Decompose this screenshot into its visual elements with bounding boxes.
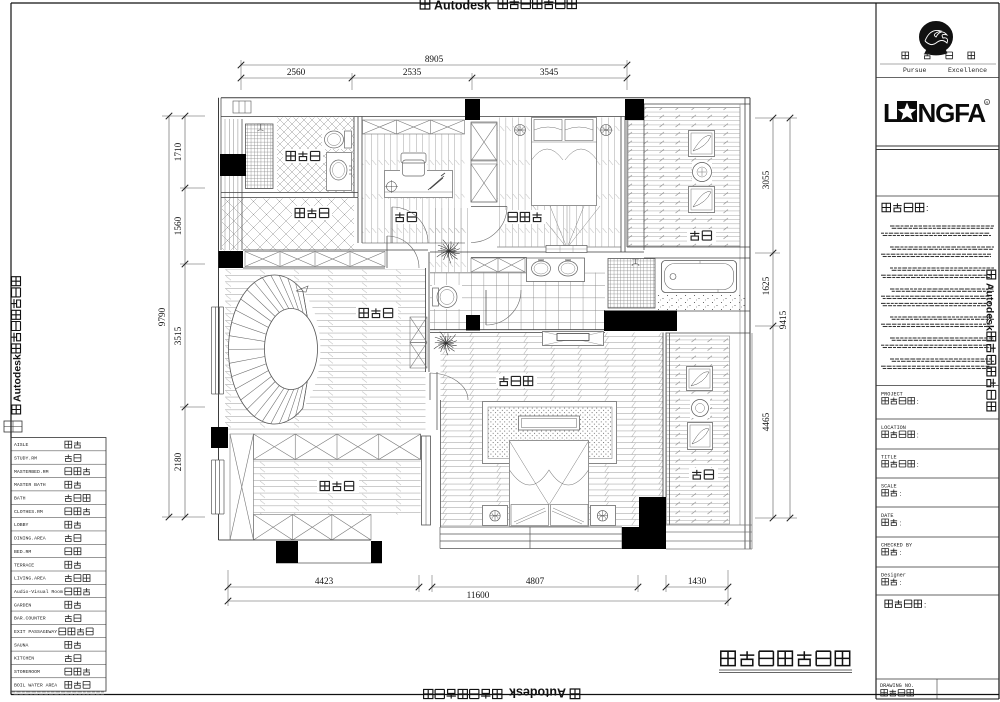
- svg-text:1625: 1625: [761, 276, 771, 295]
- svg-text::: :: [917, 462, 919, 469]
- svg-text:DRAWING NO.: DRAWING NO.: [880, 683, 914, 689]
- svg-text:2180: 2180: [173, 452, 183, 471]
- svg-text:STOREROOM: STOREROOM: [14, 669, 40, 675]
- svg-text:BED.RM: BED.RM: [14, 549, 31, 555]
- svg-text:SAUNA: SAUNA: [14, 642, 29, 648]
- svg-text:Autodesk: Autodesk: [509, 686, 566, 700]
- svg-text::: :: [926, 203, 929, 213]
- svg-text:2535: 2535: [403, 67, 422, 77]
- svg-text:MASTER BATH: MASTER BATH: [14, 482, 46, 488]
- svg-text:L: L: [883, 98, 899, 128]
- svg-text:LOBBY: LOBBY: [14, 522, 29, 528]
- svg-text:LOCATION: LOCATION: [881, 425, 906, 431]
- svg-text:PROJECT: PROJECT: [881, 392, 903, 398]
- svg-text:SCALE: SCALE: [881, 484, 897, 490]
- svg-text:KITCHEN: KITCHEN: [14, 656, 34, 662]
- svg-text:TITLE: TITLE: [881, 455, 897, 461]
- svg-text:4423: 4423: [315, 576, 334, 586]
- svg-text:4465: 4465: [761, 412, 771, 431]
- svg-text:CLOTHES.RM: CLOTHES.RM: [14, 509, 43, 515]
- svg-text:EXIT PASSAGEWAY: EXIT PASSAGEWAY: [14, 629, 57, 635]
- svg-text::: :: [899, 491, 901, 498]
- svg-text:BATH: BATH: [14, 496, 26, 502]
- svg-text:NGFA: NGFA: [918, 98, 987, 128]
- svg-text::: :: [899, 580, 901, 587]
- svg-text:Autodesk: Autodesk: [434, 0, 491, 13]
- svg-text:DINING.AREA: DINING.AREA: [14, 536, 46, 542]
- svg-text:Autodesk: Autodesk: [12, 354, 24, 402]
- svg-text:8905: 8905: [425, 54, 444, 64]
- svg-text:TERRACE: TERRACE: [14, 562, 34, 568]
- svg-text:BAR.COUNTER: BAR.COUNTER: [14, 616, 46, 622]
- svg-text:9415: 9415: [778, 310, 788, 329]
- svg-text:R: R: [986, 100, 989, 105]
- svg-text:2560: 2560: [287, 67, 306, 77]
- svg-text:Audio-Visual Room: Audio-Visual Room: [14, 589, 63, 595]
- svg-text::: :: [917, 432, 919, 439]
- svg-text:MASTERBED.RM: MASTERBED.RM: [14, 469, 49, 475]
- svg-text:3545: 3545: [540, 67, 559, 77]
- svg-text:1560: 1560: [173, 216, 183, 235]
- svg-text:GARDEN: GARDEN: [14, 602, 31, 608]
- svg-text:Designer: Designer: [881, 573, 906, 579]
- svg-text:AISLE: AISLE: [14, 442, 29, 448]
- svg-text:BOIL WATER AREA: BOIL WATER AREA: [14, 682, 57, 688]
- svg-text::: :: [924, 601, 926, 610]
- svg-text:Pursue: Pursue: [903, 67, 927, 74]
- svg-text:1430: 1430: [688, 576, 707, 586]
- svg-text::: :: [899, 520, 901, 527]
- svg-text:3055: 3055: [761, 170, 771, 189]
- svg-text:DATE: DATE: [881, 513, 893, 519]
- svg-text:4807: 4807: [526, 576, 545, 586]
- svg-text:9790: 9790: [157, 307, 167, 326]
- svg-text:1710: 1710: [173, 142, 183, 161]
- svg-text:3515: 3515: [173, 326, 183, 345]
- svg-text:Excellence: Excellence: [948, 67, 987, 74]
- svg-text:11600: 11600: [467, 590, 490, 600]
- svg-text:LIVING.AREA: LIVING.AREA: [14, 576, 46, 582]
- svg-text:STUDY.RM: STUDY.RM: [14, 455, 37, 461]
- svg-text:CHECKED BY: CHECKED BY: [881, 543, 913, 549]
- svg-text::: :: [899, 550, 901, 557]
- svg-text::: :: [917, 399, 919, 406]
